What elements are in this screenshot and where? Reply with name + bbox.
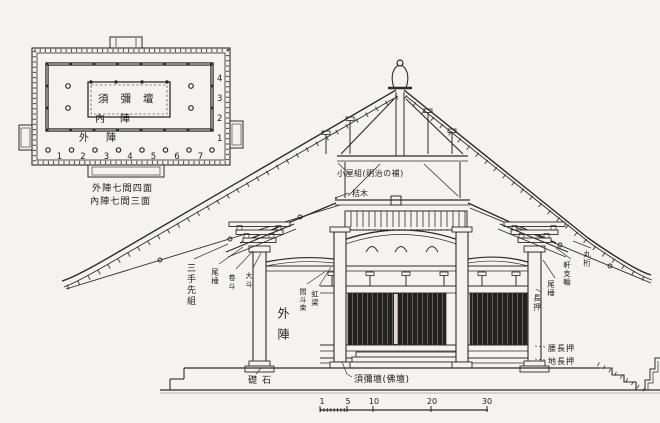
label-roof-frame: 小屋組(明治の補) xyxy=(337,168,404,178)
bay-number: 4 xyxy=(127,152,132,162)
bay-number: 6 xyxy=(174,152,179,162)
scale-tick-label: 1 xyxy=(319,397,324,406)
drawing-canvas: 須彌壇 內陣 外陣 1 2 3 4 5 6 7 4 3 2 1 外陣七間四面 內… xyxy=(0,0,660,423)
bay-number: 1 xyxy=(217,134,222,144)
section-altar-platform xyxy=(348,352,460,368)
plan-outer-zone-label: 外陣 xyxy=(79,131,133,144)
plan-inner-zone-label: 內陣 xyxy=(95,112,145,125)
label-bracket-set: 三手先組 xyxy=(185,263,196,307)
label-round-purlin: 丸桁 xyxy=(582,249,591,268)
bay-number: 2 xyxy=(80,152,85,162)
label-lever-beam: 桔木 xyxy=(352,188,368,198)
plan-caption-line1: 外陣七間四面 xyxy=(92,182,153,194)
label-altar: 須彌壇(佛壇) xyxy=(354,373,410,385)
outer-column-left xyxy=(253,252,266,368)
label-outer-sanctum: 外陣 xyxy=(276,307,290,349)
label-tail-rafter-right: 尾棰 xyxy=(546,280,555,298)
label-eave-shirin: 軒支輪 xyxy=(562,261,571,287)
bay-number: 1 xyxy=(57,152,62,162)
inner-column-right xyxy=(456,232,468,362)
label-tail-rafter-left: 尾棰 xyxy=(210,268,219,286)
label-ground-nageshi: 地長押 xyxy=(548,356,575,366)
plan-altar-label: 須彌壇 xyxy=(98,92,166,105)
label-rainbow-beam: 虹梁 xyxy=(310,290,319,308)
scale-tick-label: 20 xyxy=(427,397,437,406)
label-strut: 間斗束 xyxy=(299,288,307,312)
bay-number: 2 xyxy=(217,114,222,124)
label-small-block: 卷斗 xyxy=(228,273,236,291)
bay-number: 7 xyxy=(198,152,203,162)
plan-caption-line2: 內陣七間三面 xyxy=(90,195,151,207)
scale-tick-label: 10 xyxy=(369,397,379,406)
label-large-block: 大斗 xyxy=(245,271,253,289)
bay-number: 5 xyxy=(151,152,156,162)
door-panels xyxy=(348,293,527,345)
scale-tick-label: 30 xyxy=(482,397,492,406)
label-foundation-stone: 礎石 xyxy=(248,374,276,386)
inner-column-left xyxy=(334,232,346,362)
architectural-drawing-sheet: 須彌壇 內陣 外陣 1 2 3 4 5 6 7 4 3 2 1 外陣七間四面 內… xyxy=(0,0,660,423)
label-waist-nageshi: 腰長押 xyxy=(548,343,575,353)
bay-number: 4 xyxy=(217,74,222,84)
bay-number: 3 xyxy=(104,152,109,162)
bay-number: 3 xyxy=(217,94,222,104)
label-nageshi: 長押 xyxy=(532,294,541,312)
scale-tick-label: 5 xyxy=(345,397,350,406)
